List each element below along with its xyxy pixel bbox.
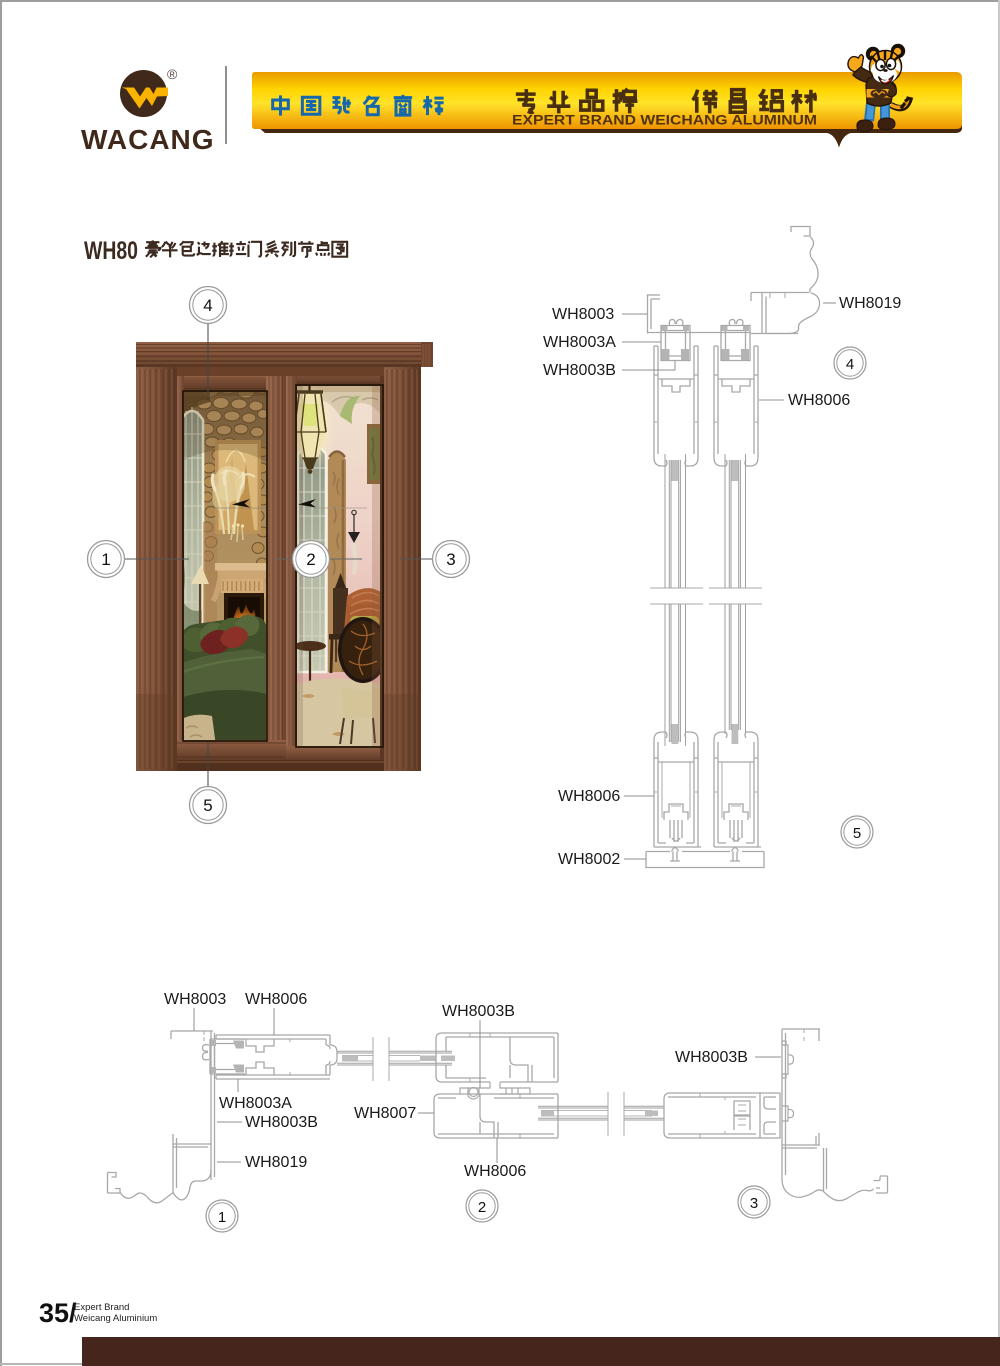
svg-text:WH8006: WH8006	[245, 991, 307, 1008]
svg-text:WH8019: WH8019	[839, 295, 901, 312]
svg-text:WH8006: WH8006	[464, 1163, 526, 1180]
svg-text:2: 2	[478, 1199, 486, 1216]
svg-text:WH8006: WH8006	[558, 788, 620, 805]
svg-text:WH8006: WH8006	[788, 392, 850, 409]
svg-text:WACANG: WACANG	[81, 124, 215, 155]
svg-text:4: 4	[846, 356, 854, 373]
svg-text:WH8003A: WH8003A	[219, 1095, 292, 1112]
svg-text:WH8019: WH8019	[245, 1154, 307, 1171]
svg-text:WH8003B: WH8003B	[675, 1049, 748, 1066]
svg-text:5: 5	[853, 825, 861, 842]
svg-text:WH8003B: WH8003B	[543, 362, 616, 379]
svg-text:4: 4	[203, 296, 212, 315]
svg-text:3: 3	[446, 550, 455, 569]
svg-text:WH8003B: WH8003B	[442, 1003, 515, 1020]
svg-text:WH80: WH80	[84, 237, 138, 265]
svg-text:WH8003: WH8003	[164, 991, 226, 1008]
svg-text:3: 3	[750, 1195, 758, 1212]
svg-text:EXPERT BRAND WEICHANG ALUMINUM: EXPERT BRAND WEICHANG ALUMINUM	[512, 113, 817, 128]
svg-text:WH8003B: WH8003B	[245, 1114, 318, 1131]
svg-text:1: 1	[218, 1209, 226, 1226]
svg-text:2: 2	[306, 550, 315, 569]
svg-text:5: 5	[203, 796, 212, 815]
svg-text:WH8002: WH8002	[558, 851, 620, 868]
svg-text:WH8003A: WH8003A	[543, 334, 616, 351]
svg-text:®: ®	[167, 66, 178, 82]
svg-text:WH8003: WH8003	[552, 306, 614, 323]
svg-text:1: 1	[101, 550, 110, 569]
svg-text:WH8007: WH8007	[354, 1105, 416, 1122]
